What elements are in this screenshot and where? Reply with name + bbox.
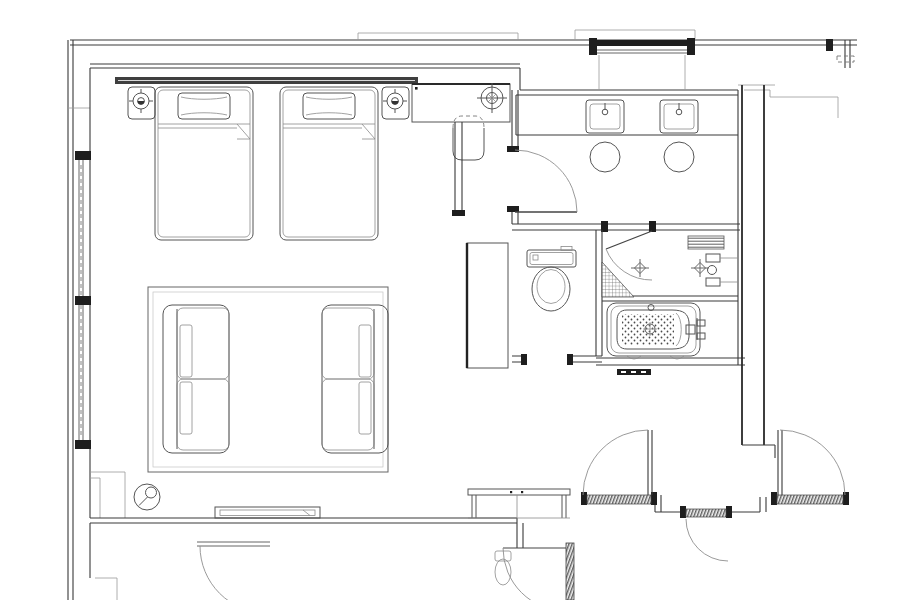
top-right-window-jamb [826,39,833,51]
toilet-room [527,247,576,312]
top-window-jamb-left [589,38,597,55]
adjacent-room-below [197,542,566,600]
floor-drain-left-icon [631,259,649,277]
desk-chair [453,116,484,160]
shelf-niche [688,236,724,249]
toilet [527,247,576,312]
wall-end-cap [452,210,465,216]
bedroom [115,77,510,518]
bath-room [607,303,705,359]
twin-bed-left [155,87,253,240]
wall-console-shelf [215,507,320,518]
closet [467,243,508,368]
anti-slip-dot-mat [622,314,674,345]
shower-glass-door [606,231,652,280]
shower-door-jamb-right [649,221,656,232]
shower-room [602,231,738,297]
lower-door-jamb-bar [566,543,574,600]
bathtub [607,303,705,359]
window-mullion-bottom [75,440,91,449]
entry-vestibule [468,430,657,518]
window-mullion-top [75,151,91,160]
floorplan-drawing [0,0,900,600]
floorplan-page [0,0,900,600]
vanity-room [515,95,738,212]
swing-door-lower-center [503,548,566,600]
tub-threshold-saddle [617,369,651,375]
headboard-wall-panel [115,77,418,84]
luggage-bench [468,489,570,518]
twin-bed-right [280,87,378,240]
table-lamp-left-icon [129,89,153,113]
service-door-center [680,506,732,561]
desk-lamp-icon [477,83,507,113]
lounge-area [148,287,388,472]
partial-fixture [495,551,511,585]
sofa-left [163,305,229,453]
sofa-right [322,305,388,453]
sink-right [660,100,698,133]
corridor [680,430,849,561]
neighbor-door-right [771,430,849,505]
exterior-walls [68,30,857,600]
table-lamp-right-icon [383,89,407,113]
vanity-door [515,150,577,212]
stool-left [590,142,620,172]
shower-valves [706,254,738,286]
top-window [589,38,695,90]
area-rug [148,287,388,472]
sink-left [586,100,624,133]
top-window-jamb-right [687,38,695,55]
window-mullion-middle [75,296,91,305]
left-window [75,151,91,449]
entry-door [581,430,657,505]
swing-door-lower-left [197,542,270,600]
floor-lamp-icon [134,484,160,510]
stool-right [664,142,694,172]
